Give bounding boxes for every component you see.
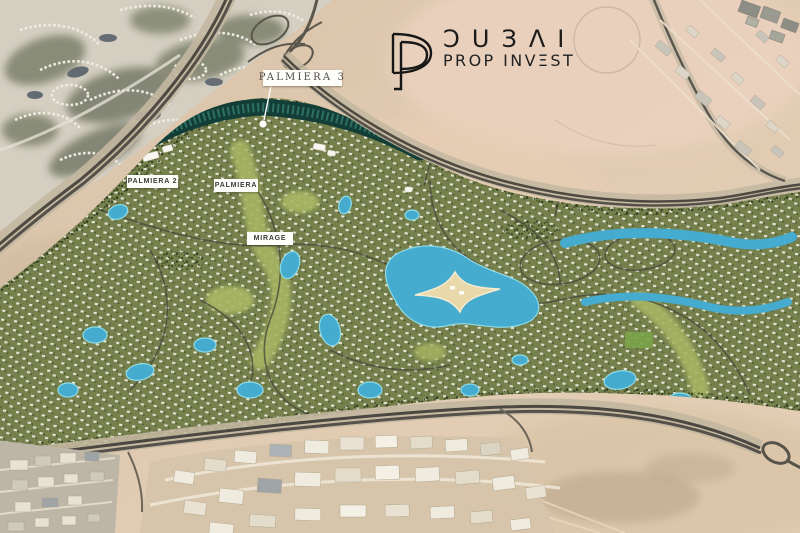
project-label-palmiera-2: PALMIERA 2 [127,175,178,188]
brand-tagline-wordmark: PROP INVΞST [443,52,576,69]
brand-logo: ƆUЗΛI PROP INVΞST [386,28,576,92]
palmiera-3-marker-dot [259,120,266,127]
brand-city-wordmark: ƆUЗΛI [443,28,576,50]
brand-wordmark: ƆUЗΛI PROP INVΞST [443,28,576,69]
project-label-palmiera: PALMIERA [214,179,258,192]
project-label-mirage: MIRAGE [247,232,293,245]
dp-monogram-icon [386,28,434,92]
masterplan-screenshot: PALMIERA 3 PALMIERA 2 PALMIERA MIRAGE ƆU… [0,0,800,533]
industrial-block-bottom-left [0,440,120,533]
sports-field [625,332,653,348]
project-label-palmiera-3: PALMIERA 3 [263,70,342,86]
